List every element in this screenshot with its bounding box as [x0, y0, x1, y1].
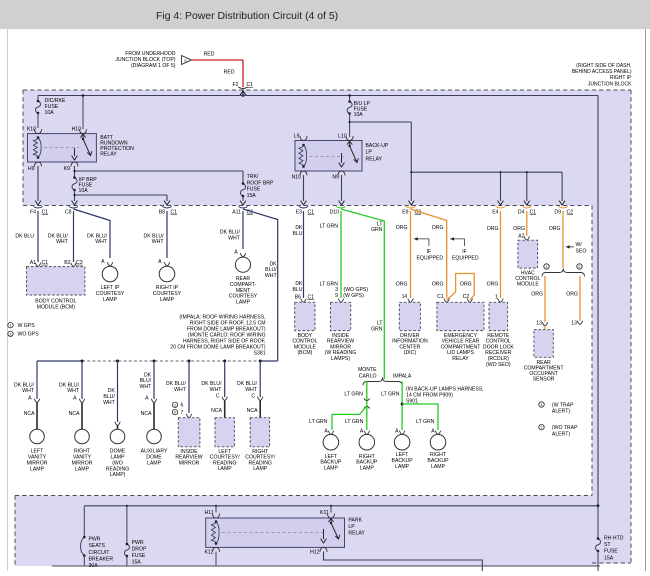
- svg-text:WHT: WHT: [22, 388, 35, 394]
- svg-text:GRN: GRN: [371, 326, 383, 332]
- svg-text:20 CM FROM DOME LAMP BREAKOUT): 20 CM FROM DOME LAMP BREAKOUT): [170, 344, 266, 350]
- svg-text:WHT: WHT: [265, 273, 278, 279]
- svg-text:1: 1: [495, 295, 498, 301]
- svg-text:RIGHT IP: RIGHT IP: [156, 285, 179, 291]
- svg-text:WHT: WHT: [95, 239, 108, 245]
- svg-text:LAMP: LAMP: [360, 465, 375, 471]
- svg-text:N10: N10: [292, 175, 302, 181]
- svg-text:ORG: ORG: [396, 282, 408, 288]
- svg-text:ALERT): ALERT): [552, 431, 570, 437]
- svg-text:CIRCUIT: CIRCUIT: [89, 550, 111, 556]
- svg-text:F4: F4: [30, 210, 36, 216]
- svg-text:H9: H9: [28, 166, 35, 172]
- svg-text:COURTESY: COURTESY: [96, 291, 125, 297]
- svg-text:LAMP: LAMP: [431, 464, 446, 470]
- svg-text:(DIC): (DIC): [404, 350, 417, 356]
- svg-text:A: A: [145, 396, 149, 402]
- svg-text:13: 13: [571, 321, 577, 327]
- svg-text:C1: C1: [437, 294, 444, 300]
- svg-text:TRK/: TRK/: [247, 174, 259, 180]
- svg-text:LAMP: LAMP: [30, 466, 45, 472]
- svg-text:H12: H12: [310, 550, 320, 556]
- svg-text:10A: 10A: [79, 188, 89, 194]
- svg-text:A: A: [158, 259, 162, 265]
- svg-text:A: A: [101, 259, 105, 265]
- svg-text:LT GRN: LT GRN: [345, 419, 364, 425]
- svg-text:LAMP: LAMP: [236, 300, 251, 306]
- svg-text:D4: D4: [518, 210, 525, 216]
- svg-text:JUNCTION BLOCK (TOP): JUNCTION BLOCK (TOP): [115, 57, 175, 63]
- svg-text:ORG: ORG: [566, 292, 578, 298]
- svg-text:B6: B6: [295, 294, 301, 300]
- svg-text:MIRROR: MIRROR: [179, 460, 200, 466]
- svg-text:RELAY: RELAY: [452, 356, 469, 362]
- svg-text:ORG: ORG: [487, 226, 499, 232]
- svg-text:(RIGHT SIDE OF DASH,: (RIGHT SIDE OF DASH,: [576, 63, 631, 69]
- svg-text:WHT: WHT: [245, 387, 258, 393]
- svg-text:LAMP): LAMP): [110, 472, 126, 478]
- svg-text:ORG: ORG: [531, 292, 543, 298]
- svg-text:BLU: BLU: [292, 231, 302, 237]
- svg-text:L10: L10: [338, 133, 347, 139]
- svg-text:L9: L9: [294, 133, 300, 139]
- svg-text:WO GPS: WO GPS: [18, 332, 40, 338]
- svg-text:EQUIPPED: EQUIPPED: [417, 256, 444, 262]
- svg-text:FUSE: FUSE: [132, 553, 146, 559]
- svg-text:E4: E4: [492, 210, 498, 216]
- svg-text:ORG: ORG: [513, 226, 525, 232]
- svg-text:JUNCTION BLOCK: JUNCTION BLOCK: [588, 81, 632, 87]
- svg-text:RELAY: RELAY: [100, 151, 117, 157]
- svg-text:RED: RED: [204, 52, 215, 58]
- svg-text:LT GRN: LT GRN: [416, 419, 435, 425]
- svg-text:WHT: WHT: [174, 387, 187, 393]
- svg-text:BEHIND ACCESS PANEL): BEHIND ACCESS PANEL): [572, 69, 632, 75]
- svg-text:ORG: ORG: [396, 225, 408, 231]
- svg-text:A: A: [73, 396, 77, 402]
- svg-text:B8: B8: [159, 210, 165, 216]
- svg-text:W/: W/: [576, 242, 583, 248]
- svg-text:13: 13: [536, 321, 542, 327]
- svg-text:PWR: PWR: [89, 537, 101, 543]
- svg-text:SEATS: SEATS: [89, 543, 106, 549]
- svg-text:ORG: ORG: [487, 281, 499, 287]
- svg-text:WHT: WHT: [210, 387, 223, 393]
- svg-text:LAMP: LAMP: [218, 466, 233, 472]
- svg-text:30A: 30A: [89, 563, 99, 569]
- svg-text:LT GRN: LT GRN: [344, 392, 363, 398]
- svg-text:A: A: [234, 250, 238, 256]
- svg-text:15A: 15A: [132, 560, 142, 566]
- svg-text:LP: LP: [366, 150, 373, 156]
- svg-text:Fig 4: Power Distribution Circ: Fig 4: Power Distribution Circuit (4 of …: [156, 11, 338, 22]
- svg-text:ORG: ORG: [432, 225, 444, 231]
- svg-text:10A: 10A: [45, 110, 55, 116]
- svg-text:RIGHT IP: RIGHT IP: [610, 75, 632, 81]
- svg-text:A1: A1: [30, 260, 36, 266]
- svg-text:C1: C1: [42, 260, 49, 266]
- svg-text:(DIAGRAM 1 OF 5): (DIAGRAM 1 OF 5): [131, 63, 176, 69]
- svg-text:A: A: [360, 429, 364, 435]
- svg-text:C1: C1: [308, 294, 315, 300]
- svg-text:6: 6: [181, 403, 184, 409]
- svg-text:9: 9: [335, 293, 338, 299]
- svg-text:WHT: WHT: [228, 235, 241, 241]
- svg-text:EQUIPPED: EQUIPPED: [452, 256, 479, 262]
- svg-text:D9: D9: [554, 210, 561, 216]
- svg-text:C1: C1: [42, 210, 49, 216]
- svg-text:NCA: NCA: [141, 411, 152, 417]
- svg-text:LT GRN: LT GRN: [320, 223, 339, 229]
- svg-text:(WO SEO): (WO SEO): [486, 362, 511, 368]
- svg-text:WHT: WHT: [56, 239, 69, 245]
- svg-text:LAMP: LAMP: [324, 465, 339, 471]
- svg-text:GRN: GRN: [371, 227, 383, 233]
- svg-text:NCA: NCA: [69, 411, 80, 417]
- svg-text:ORG: ORG: [460, 282, 472, 288]
- svg-text:FROM UNDERHOOD: FROM UNDERHOOD: [125, 51, 176, 57]
- svg-text:SENSOR: SENSOR: [533, 377, 555, 383]
- svg-text:LAMP: LAMP: [147, 460, 162, 466]
- svg-text:IMPALA: IMPALA: [393, 373, 412, 379]
- svg-text:BACK-UP: BACK-UP: [366, 143, 389, 149]
- svg-text:LAMP: LAMP: [75, 466, 90, 472]
- svg-text:N9: N9: [332, 175, 339, 181]
- svg-text:NCA: NCA: [247, 408, 258, 414]
- svg-text:15A: 15A: [604, 555, 614, 561]
- svg-text:C1: C1: [308, 210, 315, 216]
- svg-text:FUSE: FUSE: [604, 549, 618, 555]
- svg-text:MODULE: MODULE: [517, 282, 540, 288]
- svg-text:CARLO: CARLO: [359, 373, 377, 379]
- svg-text:IF: IF: [427, 249, 432, 255]
- svg-text:C: C: [251, 393, 255, 399]
- svg-text:RH HTD: RH HTD: [604, 536, 624, 542]
- svg-text:LEFT IP: LEFT IP: [101, 285, 120, 291]
- svg-text:LP: LP: [348, 524, 355, 530]
- svg-text:LAMP: LAMP: [395, 464, 410, 470]
- svg-text:DK BLU: DK BLU: [15, 233, 34, 239]
- svg-text:F2: F2: [233, 82, 239, 88]
- svg-text:A: A: [431, 429, 435, 435]
- svg-text:7: 7: [181, 410, 184, 416]
- svg-text:IF: IF: [462, 249, 467, 255]
- svg-text:D10: D10: [330, 210, 340, 216]
- svg-text:15A: 15A: [247, 193, 257, 199]
- svg-text:W GPS: W GPS: [18, 323, 36, 329]
- svg-text:PARK: PARK: [348, 517, 362, 523]
- svg-text:LAMP: LAMP: [103, 297, 118, 303]
- svg-text:LAMP: LAMP: [160, 297, 175, 303]
- svg-text:C1: C1: [171, 210, 178, 216]
- svg-text:C8: C8: [65, 210, 72, 216]
- svg-text:14: 14: [402, 294, 408, 300]
- svg-text:MODULE (BCM): MODULE (BCM): [37, 305, 76, 311]
- svg-text:ORG: ORG: [549, 226, 561, 232]
- svg-text:BREAKER: BREAKER: [89, 556, 114, 562]
- svg-text:C: C: [216, 393, 220, 399]
- svg-text:LT GRN: LT GRN: [309, 419, 328, 425]
- svg-text:A11: A11: [232, 210, 241, 216]
- svg-text:C1: C1: [530, 210, 537, 216]
- svg-text:K9: K9: [64, 166, 70, 172]
- svg-text:DROP: DROP: [132, 547, 147, 553]
- svg-text:A: A: [28, 396, 32, 402]
- svg-text:ST: ST: [604, 542, 611, 548]
- svg-text:S381: S381: [254, 350, 266, 356]
- svg-text:ROOF BRP: ROOF BRP: [247, 180, 274, 186]
- svg-text:E9: E9: [402, 210, 408, 216]
- svg-text:(WO TRAP: (WO TRAP: [552, 425, 578, 431]
- svg-text:A: A: [324, 429, 328, 435]
- svg-text:LT GRN: LT GRN: [381, 392, 400, 398]
- svg-text:NCA: NCA: [211, 408, 222, 414]
- svg-text:A2: A2: [518, 234, 524, 240]
- svg-text:FUSE: FUSE: [247, 187, 261, 193]
- svg-text:NCA: NCA: [24, 411, 35, 417]
- svg-text:C2: C2: [567, 210, 574, 216]
- svg-text:RELAY: RELAY: [348, 531, 365, 537]
- svg-text:10A: 10A: [354, 112, 364, 118]
- svg-text:LAMP: LAMP: [253, 466, 268, 472]
- svg-text:WHT: WHT: [152, 239, 165, 245]
- svg-text:E3: E3: [296, 210, 302, 216]
- svg-text:A: A: [395, 429, 399, 435]
- svg-text:RED: RED: [224, 70, 235, 76]
- svg-text:G: G: [184, 59, 187, 63]
- svg-text:ORG: ORG: [432, 282, 444, 288]
- svg-text:BLU: BLU: [292, 287, 302, 293]
- svg-text:PWR: PWR: [132, 540, 144, 546]
- svg-text:(W TRAP: (W TRAP: [552, 402, 574, 408]
- svg-text:MONTE: MONTE: [358, 367, 377, 373]
- svg-text:C2: C2: [463, 294, 470, 300]
- svg-text:(W GPS): (W GPS): [343, 293, 364, 299]
- svg-text:B2: B2: [64, 260, 70, 266]
- svg-text:COURTESY: COURTESY: [153, 291, 182, 297]
- svg-text:SEO: SEO: [576, 249, 587, 255]
- svg-text:LAMPS): LAMPS): [331, 356, 350, 362]
- svg-text:WHT: WHT: [67, 388, 80, 394]
- svg-text:WHT: WHT: [103, 400, 116, 406]
- svg-text:(BCM): (BCM): [297, 350, 312, 356]
- svg-text:C3: C3: [76, 260, 83, 266]
- svg-text:ALERT): ALERT): [552, 409, 570, 415]
- svg-text:WHT: WHT: [139, 384, 152, 390]
- svg-text:RELAY: RELAY: [366, 157, 383, 163]
